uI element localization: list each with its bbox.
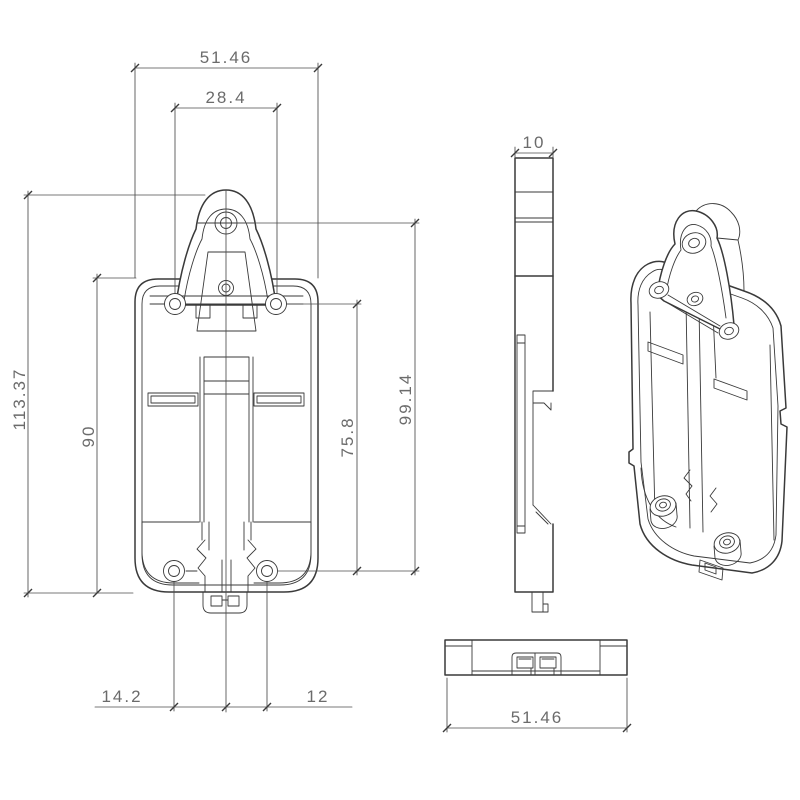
front-left-clip xyxy=(197,522,209,592)
dim-side-thickness-label: 10 xyxy=(523,133,546,152)
dim-bottom-overall-width-label: 51.46 xyxy=(511,708,564,727)
front-center-channel xyxy=(200,357,253,522)
front-right-slot xyxy=(254,393,304,406)
dimension-lines xyxy=(24,63,631,732)
dim-front-tab-to-hole-label: 99.14 xyxy=(396,373,415,426)
side-bottom-tab xyxy=(532,592,548,612)
dim-front-overall-height-label: 113.37 xyxy=(10,368,29,431)
isometric-view xyxy=(629,204,787,580)
iso-left-boss xyxy=(648,493,678,519)
technical-drawing-canvas: 51.46 28.4 113.37 90 75.8 99.14 14.2 12 … xyxy=(0,0,800,800)
front-center-slot xyxy=(222,560,231,592)
dim-front-body-height-label: 90 xyxy=(79,425,98,448)
front-left-shoulder-hole xyxy=(165,294,186,315)
bottom-end-blocks xyxy=(445,640,627,675)
bottom-view xyxy=(445,640,627,675)
side-bottom-latch xyxy=(533,505,551,524)
side-top-hook xyxy=(533,391,553,505)
front-left-slot xyxy=(148,393,198,406)
front-bottom-left-hole xyxy=(164,561,185,582)
iso-hang-tab xyxy=(657,211,734,332)
front-right-clip xyxy=(244,522,256,592)
dim-front-hole-span-label: 75.8 xyxy=(338,416,357,457)
front-bottom-right-hole xyxy=(257,561,278,582)
front-bottom-tab xyxy=(203,592,247,613)
dimension-labels: 51.46 28.4 113.37 90 75.8 99.14 14.2 12 … xyxy=(10,48,563,727)
iso-bottom-tab xyxy=(699,560,723,580)
din-bracket-drawing: 51.46 28.4 113.37 90 75.8 99.14 14.2 12 … xyxy=(0,0,800,800)
dimension-ticks xyxy=(24,64,631,732)
front-view xyxy=(135,190,318,613)
iso-bottom-bosses xyxy=(648,493,742,566)
front-body-outline xyxy=(135,279,318,592)
iso-right-boss xyxy=(712,530,742,556)
side-outline xyxy=(515,158,553,592)
dim-front-hole-spacing-label: 28.4 xyxy=(205,88,246,107)
side-view xyxy=(515,158,553,612)
bottom-center-feature xyxy=(512,653,561,675)
dim-lines-front xyxy=(24,63,419,711)
dim-front-bottom-left-offset-label: 14.2 xyxy=(101,687,142,706)
side-section-lines xyxy=(515,192,553,222)
dim-front-bottom-right-offset-label: 12 xyxy=(307,687,330,706)
side-rail-plate xyxy=(517,335,525,533)
front-right-shoulder-hole xyxy=(266,294,287,315)
dim-front-overall-width-label: 51.46 xyxy=(200,48,253,67)
